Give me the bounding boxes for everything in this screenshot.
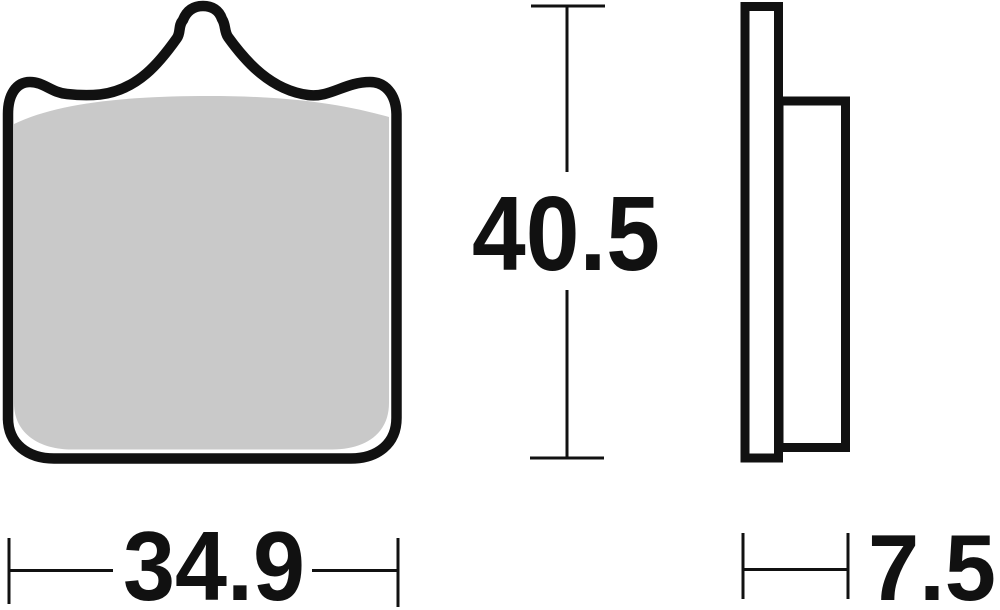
drawing-canvas: 40.5 34.9 7.5 xyxy=(0,0,1000,610)
height-dimension-label: 40.5 xyxy=(472,175,660,293)
height-dimension: 40.5 xyxy=(472,6,660,458)
thickness-dimension-label: 7.5 xyxy=(868,515,996,610)
pad-front-view xyxy=(8,6,397,459)
pad-side-view xyxy=(745,7,846,459)
backing-plate-side xyxy=(745,7,779,459)
width-dimension-label: 34.9 xyxy=(123,511,305,610)
pad-friction-surface xyxy=(14,96,389,450)
brake-pad-technical-drawing: 40.5 34.9 7.5 xyxy=(0,0,1000,610)
width-dimension: 34.9 xyxy=(9,511,398,610)
thickness-dimension: 7.5 xyxy=(743,515,996,610)
friction-material-side xyxy=(779,101,846,448)
